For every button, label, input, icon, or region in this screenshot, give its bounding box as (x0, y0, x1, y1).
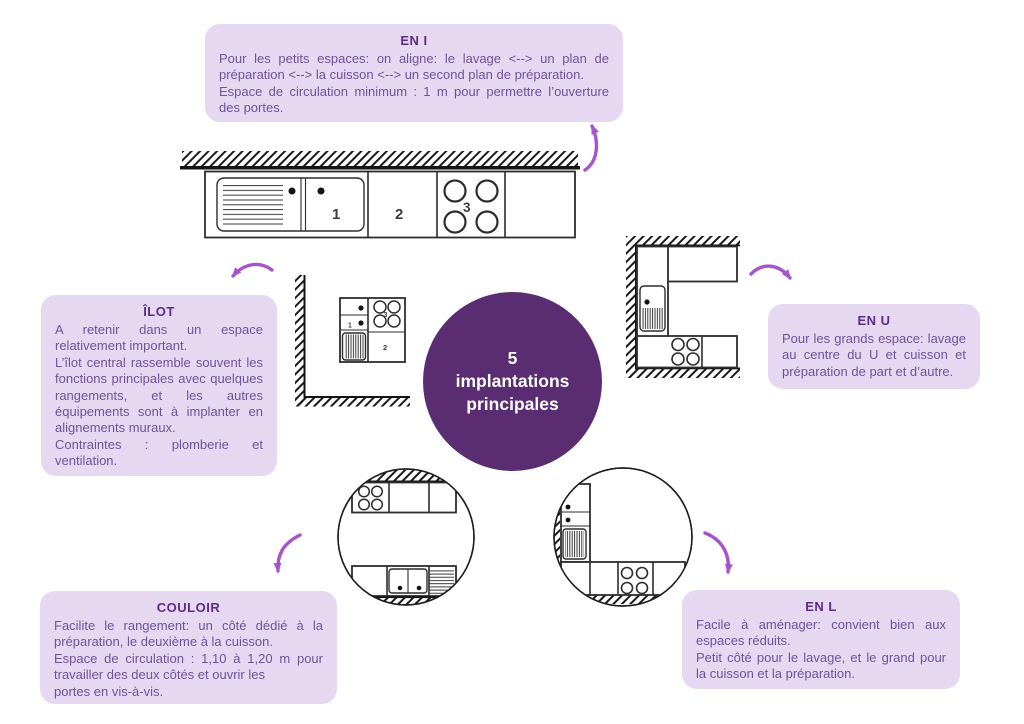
l-kitchen-diagram (552, 466, 694, 608)
en-l-title: EN L (696, 599, 946, 614)
u-kitchen-diagram (618, 232, 753, 382)
zone-label-sink: 1 (348, 323, 352, 330)
en-l-description-box: EN L Facile à aménager: convient bien au… (682, 590, 960, 689)
couloir-text-1: Facilite le rangement: un côté dédié à l… (54, 618, 323, 651)
center-line-3: principales (466, 393, 558, 416)
couloir-title: COULOIR (54, 600, 323, 615)
zone-label-prep: 2 (395, 206, 403, 223)
zone-label-sink: 1 (332, 206, 340, 223)
en-l-text-1: Facile à aménager: convient bien aux esp… (696, 617, 946, 650)
sink-unit (640, 286, 665, 331)
wall-top (180, 151, 580, 170)
couloir-text-2: Espace de circulation : 1,10 à 1,20 m po… (54, 651, 323, 684)
island-unit: 1 3 2 (340, 298, 405, 362)
arrow-to-en-u (746, 258, 798, 292)
zone-label-cook: 3 (463, 200, 471, 215)
ilot-text-3: Contraintes : plomberie et ventilation. (55, 437, 263, 470)
ilot-text-1: A retenir dans un espace relativement im… (55, 322, 263, 355)
couloir-kitchen-diagram (336, 467, 476, 607)
en-i-text-2: Espace de circulation minimum : 1 m pour… (219, 84, 609, 117)
arrow-to-couloir (268, 530, 312, 578)
wall-top (352, 470, 446, 483)
couloir-description-box: COULOIR Facilite le rangement: un côté d… (40, 591, 337, 704)
en-l-text-2: Petit côté pour le lavage, et le grand p… (696, 650, 946, 683)
zone-label-cook: 3 (384, 312, 388, 319)
couloir-text-3: portes en vis-à-vis. (54, 684, 323, 700)
center-line-1: 5 (508, 347, 518, 370)
ilot-text-2: L’îlot central rassemble souvent les fon… (55, 355, 263, 437)
en-i-description-box: EN I Pour les petits espaces: on aligne:… (205, 24, 623, 122)
center-title-circle: 5 implantations principales (423, 292, 602, 471)
ilot-description-box: ÎLOT A retenir dans un espace relativeme… (41, 295, 277, 476)
en-u-description-box: EN U Pour les grands espace: lavage au c… (768, 304, 980, 389)
sink-unit (389, 569, 454, 594)
en-i-text-1: Pour les petits espaces: on aligne: le l… (219, 51, 609, 84)
en-i-title: EN I (219, 33, 609, 48)
sink-unit: 1 (217, 178, 364, 231)
arrow-to-en-i (573, 118, 613, 174)
en-u-text-1: Pour les grands espace: lavage au centre… (782, 331, 966, 380)
sink-unit (561, 484, 590, 562)
arrow-to-ilot (226, 258, 278, 290)
arrow-to-en-l (698, 528, 744, 580)
en-u-title: EN U (782, 313, 966, 328)
center-line-2: implantations (456, 370, 570, 393)
linear-kitchen-diagram: 1 2 3 (180, 150, 580, 245)
ilot-title: ÎLOT (55, 304, 263, 319)
zone-label-prep: 2 (383, 343, 387, 352)
kitchen-layouts-infographic: EN I Pour les petits espaces: on aligne:… (0, 0, 1024, 724)
island-kitchen-diagram: 1 3 2 (290, 265, 420, 410)
